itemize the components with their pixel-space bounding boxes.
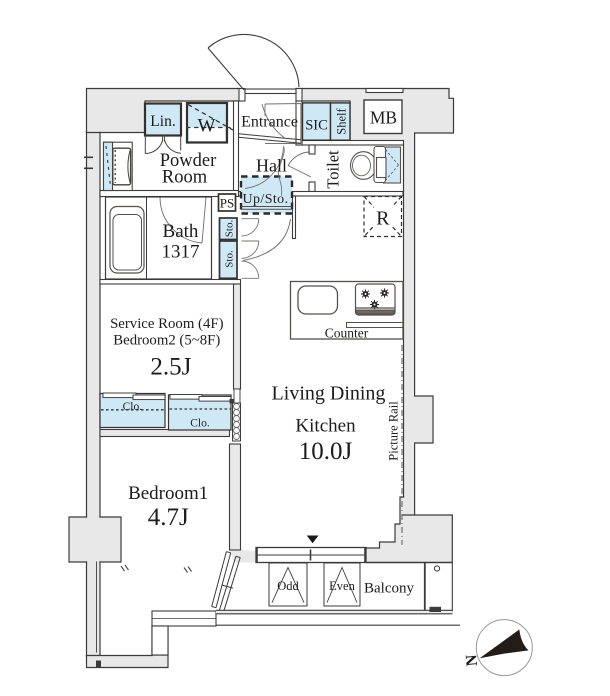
svg-text:Living Dining: Living Dining xyxy=(272,383,386,405)
svg-text:Shelf: Shelf xyxy=(334,107,348,134)
svg-text:Clo.: Clo. xyxy=(190,418,210,430)
svg-text:N: N xyxy=(463,654,481,667)
svg-text:1317: 1317 xyxy=(162,242,200,263)
svg-text:10.0J: 10.0J xyxy=(299,438,353,465)
svg-text:Room: Room xyxy=(162,168,208,188)
svg-text:4.7J: 4.7J xyxy=(148,504,189,531)
svg-text:Lin.: Lin. xyxy=(150,113,175,130)
svg-text:Kitchen: Kitchen xyxy=(295,416,356,437)
svg-text:PS: PS xyxy=(220,196,234,211)
svg-text:Even: Even xyxy=(329,579,355,593)
svg-text:W: W xyxy=(198,116,216,137)
svg-text:Service Room (4F): Service Room (4F) xyxy=(110,316,223,332)
svg-text:Hall: Hall xyxy=(256,156,287,176)
svg-text:Bath: Bath xyxy=(163,221,199,242)
svg-text:Bedroom1: Bedroom1 xyxy=(128,483,208,504)
svg-text:Bedroom2 (5~8F): Bedroom2 (5~8F) xyxy=(113,333,220,349)
svg-text:Toilet: Toilet xyxy=(324,150,343,189)
svg-text:Counter: Counter xyxy=(325,326,369,341)
svg-text:Sto.: Sto. xyxy=(224,250,236,268)
svg-text:Picture Rail: Picture Rail xyxy=(387,401,401,461)
svg-text:Up/Sto.: Up/Sto. xyxy=(243,192,289,207)
svg-text:Clo.: Clo. xyxy=(123,401,143,413)
svg-text:2.5J: 2.5J xyxy=(150,354,191,381)
svg-text:R: R xyxy=(376,208,390,230)
svg-text:Balcony: Balcony xyxy=(364,581,414,597)
svg-text:MB: MB xyxy=(370,108,397,128)
svg-text:SIC: SIC xyxy=(305,118,328,134)
svg-text:Odd: Odd xyxy=(277,579,299,593)
svg-text:Entrance: Entrance xyxy=(241,114,298,131)
svg-text:Sto.: Sto. xyxy=(224,220,236,238)
